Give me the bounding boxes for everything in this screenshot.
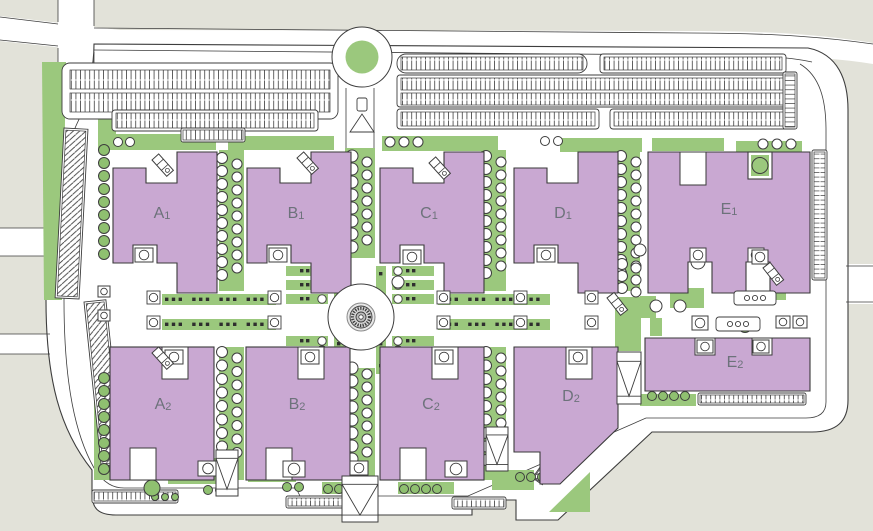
tree: [496, 405, 506, 415]
tree: [217, 205, 228, 216]
pergola-gate: [617, 352, 641, 404]
tree: [631, 275, 641, 285]
tree: [232, 394, 242, 404]
tree: [631, 235, 641, 245]
planter-box: [98, 310, 110, 321]
tree: [232, 407, 242, 417]
tree: [324, 485, 333, 494]
tree: [232, 211, 242, 221]
tree: [362, 157, 372, 167]
building-C2: C2: [380, 347, 484, 480]
planter-box: [269, 248, 287, 262]
tree: [433, 485, 442, 494]
tree: [99, 145, 110, 156]
tree: [232, 380, 242, 390]
tree: [217, 374, 228, 385]
tree: [99, 451, 110, 462]
planter-box: [537, 248, 555, 262]
tree: [295, 483, 304, 492]
parking-lot: [783, 72, 797, 129]
tree: [541, 137, 550, 146]
tree: [648, 392, 657, 401]
lawn: [560, 138, 642, 152]
tree: [362, 447, 372, 457]
tree: [114, 138, 123, 147]
pergola-gate: [342, 476, 378, 522]
tree: [204, 486, 213, 495]
tree: [496, 366, 506, 376]
tree: [362, 235, 372, 245]
tree: [217, 387, 228, 398]
parking-lot: [452, 497, 506, 509]
tree-planter: [437, 291, 450, 304]
tree: [232, 263, 242, 273]
tree: [362, 395, 372, 405]
tree: [650, 300, 662, 312]
tree: [681, 392, 690, 401]
tree: [631, 222, 641, 232]
tree: [217, 179, 228, 190]
tree: [496, 235, 506, 245]
planter-box: [301, 350, 319, 364]
tree: [232, 172, 242, 182]
garden-module-row: [162, 319, 276, 330]
parking-lot: [286, 496, 348, 508]
tree: [411, 485, 420, 494]
planter-box: [403, 250, 421, 264]
tree: [362, 421, 372, 431]
tree: [400, 485, 409, 494]
tree: [99, 210, 110, 221]
planter-box: [435, 350, 453, 364]
tree: [496, 157, 506, 167]
tree: [670, 392, 679, 401]
planter-box: [793, 316, 807, 328]
tree: [362, 196, 372, 206]
parking-lot: [397, 54, 587, 73]
building-A2: A2: [110, 347, 214, 480]
lawn: [652, 138, 724, 151]
parking-lot: [397, 109, 599, 129]
tree: [217, 257, 228, 268]
tree: [232, 367, 242, 377]
tree: [99, 184, 110, 195]
tree: [392, 276, 404, 288]
site-plan-canvas: A1B1C1D1E1A2B2C2D2E2: [0, 0, 873, 531]
tree: [217, 192, 228, 203]
tree: [99, 373, 110, 384]
tree: [496, 353, 506, 363]
tree: [232, 237, 242, 247]
tree: [362, 209, 372, 219]
tree: [362, 183, 372, 193]
tree: [631, 183, 641, 193]
green-planter-box: [748, 152, 772, 179]
tree: [786, 139, 796, 149]
tree: [413, 137, 423, 147]
tree: [362, 382, 372, 392]
tree: [496, 392, 506, 402]
tree: [283, 483, 292, 492]
tree: [217, 166, 228, 177]
tree: [232, 159, 242, 169]
tree: [217, 428, 228, 439]
tree-planter: [147, 291, 160, 304]
bench-bar: [734, 291, 776, 305]
tree: [217, 270, 228, 281]
garden-module-row: [438, 294, 550, 305]
tree: [99, 412, 110, 423]
planter-box: [753, 340, 769, 353]
parking-lot: [812, 150, 827, 280]
tree-planter: [268, 316, 281, 329]
pergola-gate: [486, 427, 508, 471]
parking-lot: [181, 128, 245, 142]
tree: [99, 197, 110, 208]
tree-planter: [514, 316, 527, 329]
tree: [385, 137, 395, 147]
tree: [232, 224, 242, 234]
tree: [99, 223, 110, 234]
tree: [631, 170, 641, 180]
tree: [496, 170, 506, 180]
bench-bar: [716, 317, 760, 331]
planter-box: [697, 340, 713, 353]
tree: [232, 185, 242, 195]
tree: [362, 369, 372, 379]
tree: [99, 249, 110, 260]
tree: [554, 137, 563, 146]
tree: [496, 222, 506, 232]
road-stub: [0, 334, 50, 354]
planter-box: [776, 316, 790, 328]
tree: [172, 494, 179, 501]
building-B2: B2: [246, 347, 350, 480]
planter-box: [135, 248, 153, 262]
tree: [232, 250, 242, 260]
tree: [217, 231, 228, 242]
tree: [217, 153, 228, 164]
tree: [162, 494, 169, 501]
tree: [99, 158, 110, 169]
tree-planter: [268, 291, 281, 304]
tree-planter: [147, 316, 160, 329]
tree: [631, 263, 641, 273]
tree: [232, 353, 242, 363]
tree: [422, 485, 431, 494]
planter-box: [98, 286, 110, 297]
tree: [217, 218, 228, 229]
tree: [496, 196, 506, 206]
tree: [631, 287, 641, 297]
tree: [659, 392, 668, 401]
parking-lot: [698, 393, 806, 405]
planter-box: [692, 316, 708, 330]
tree: [362, 434, 372, 444]
tree: [144, 480, 160, 496]
tree: [631, 157, 641, 167]
tree: [772, 139, 782, 149]
tree: [527, 473, 536, 482]
fountain: [328, 284, 394, 350]
road-stub: [846, 264, 873, 304]
tree: [217, 347, 228, 358]
building-E1: E1: [648, 152, 810, 293]
tree: [496, 379, 506, 389]
tree: [232, 434, 242, 444]
tree: [99, 236, 110, 247]
tree: [496, 261, 506, 271]
tree: [232, 198, 242, 208]
tree: [99, 464, 110, 475]
lawn: [650, 318, 662, 336]
planter-box: [752, 250, 768, 264]
parking-lot: [610, 109, 788, 129]
tree: [399, 137, 409, 147]
pergola-gate: [216, 450, 238, 496]
tree: [362, 170, 372, 180]
tree: [217, 414, 228, 425]
tree: [217, 360, 228, 371]
parking-lot: [397, 75, 789, 107]
tree: [674, 300, 686, 312]
parking-lot: [600, 54, 786, 73]
planter-box: [445, 461, 467, 477]
traffic-island: [357, 98, 367, 111]
tree: [99, 399, 110, 410]
tree: [496, 183, 506, 193]
tree: [758, 139, 768, 149]
tree: [516, 473, 525, 482]
tree: [496, 209, 506, 219]
site-plan-svg: A1B1C1D1E1A2B2C2D2E2: [0, 0, 873, 531]
tree: [99, 425, 110, 436]
building-E2: E2: [645, 338, 810, 391]
entry-road: [344, 80, 376, 152]
tree: [99, 438, 110, 449]
tree: [232, 421, 242, 431]
tree: [634, 244, 646, 256]
tree: [126, 138, 135, 147]
planter-box: [198, 461, 218, 476]
garden-module-row: [438, 319, 550, 330]
tree-planter: [585, 316, 598, 329]
tree-planter: [585, 291, 598, 304]
tree: [496, 248, 506, 258]
planter-box: [690, 248, 706, 262]
tree: [99, 171, 110, 182]
tree: [362, 408, 372, 418]
planter-box: [569, 350, 587, 364]
tree-planter: [514, 291, 527, 304]
tree: [362, 222, 372, 232]
tree: [217, 244, 228, 255]
tree: [631, 196, 641, 206]
tree-planter: [437, 316, 450, 329]
planter-box: [283, 461, 305, 477]
tree: [631, 209, 641, 219]
tree: [217, 401, 228, 412]
garden-module-row: [162, 294, 276, 305]
planter-box: [350, 461, 368, 475]
tree: [99, 386, 110, 397]
